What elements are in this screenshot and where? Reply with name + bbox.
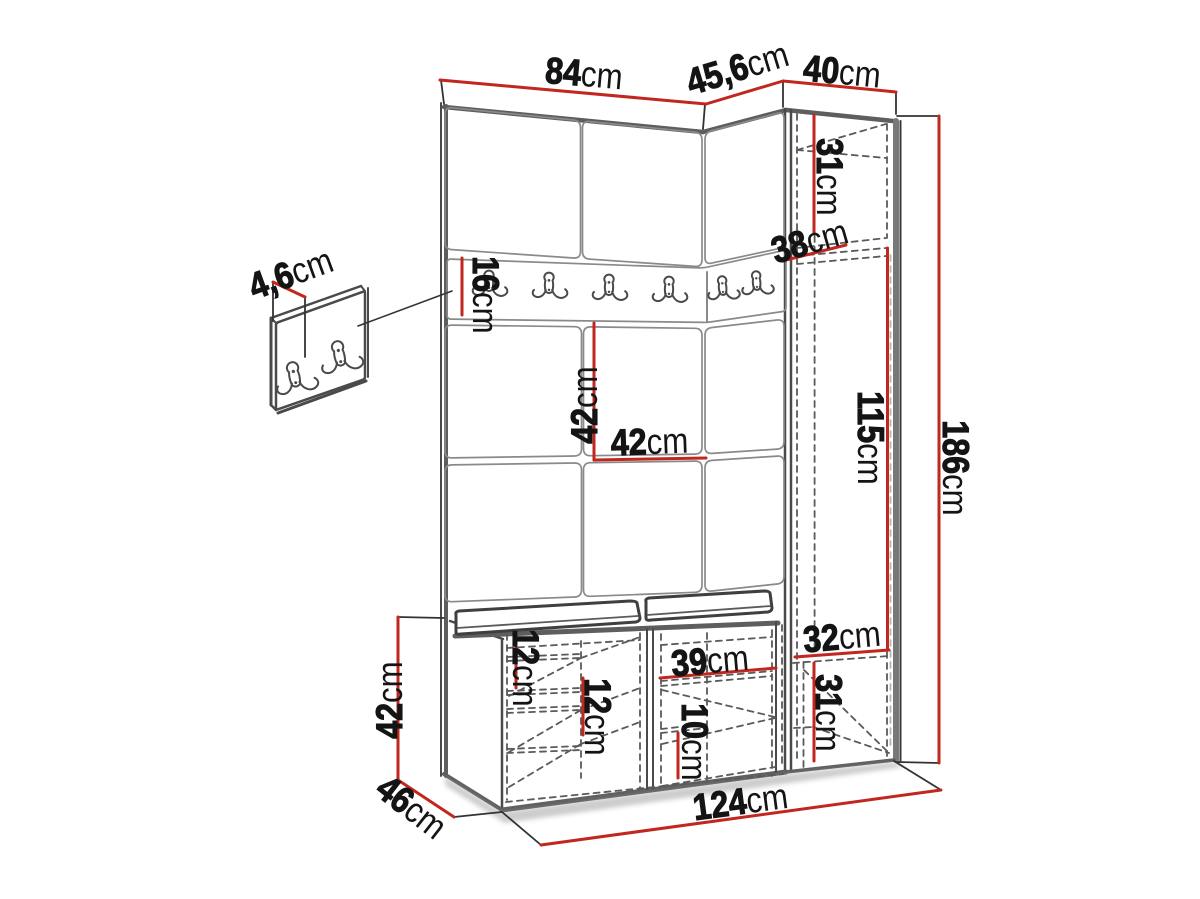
svg-text:115cm: 115cm	[849, 391, 890, 485]
svg-text:42cm: 42cm	[370, 661, 411, 739]
svg-text:16cm: 16cm	[464, 256, 505, 334]
svg-text:39cm: 39cm	[670, 638, 751, 685]
svg-text:42cm: 42cm	[610, 421, 689, 464]
svg-text:12cm: 12cm	[576, 678, 617, 756]
svg-text:186cm: 186cm	[934, 420, 975, 515]
svg-text:84cm: 84cm	[544, 51, 625, 98]
svg-text:31cm: 31cm	[807, 674, 848, 752]
svg-text:40cm: 40cm	[802, 48, 883, 96]
svg-text:32cm: 32cm	[802, 614, 883, 661]
svg-text:10cm: 10cm	[673, 703, 714, 781]
svg-text:12cm: 12cm	[504, 629, 545, 707]
svg-text:31cm: 31cm	[808, 138, 849, 216]
svg-text:42cm: 42cm	[565, 366, 606, 444]
